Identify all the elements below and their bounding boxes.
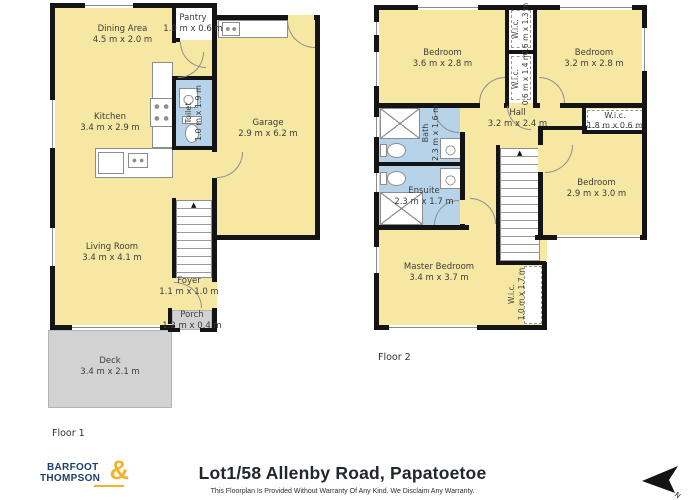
- room-dims: 2.9 m x 3.0 m: [545, 189, 648, 200]
- window: [374, 247, 379, 273]
- room-name: W.i.c.: [507, 284, 517, 304]
- window: [374, 52, 379, 86]
- room-label-foyer: Foyer 1.1 m x 1.0 m: [158, 276, 220, 297]
- logo-underline: [94, 485, 124, 487]
- stairs-floor2: [500, 148, 540, 262]
- room-name: Master Bedroom: [380, 262, 498, 273]
- window: [374, 22, 379, 35]
- wall: [538, 126, 543, 238]
- north-arrow-svg: N: [638, 463, 686, 499]
- north-arrow-icon: N: [638, 463, 686, 499]
- window: [50, 228, 55, 266]
- room-label-master: Master Bedroom 3.4 m x 3.7 m: [380, 262, 498, 283]
- room-name: Kitchen: [60, 112, 160, 123]
- room-label-pantry: Pantry 1.0 m x 0.6 m: [158, 13, 228, 34]
- room-label-ensuite: Ensuite 2.3 m x 1.7 m: [382, 186, 466, 207]
- room-label-garage: Garage 2.9 m x 6.2 m: [218, 118, 318, 139]
- room-label-living: Living Room 3.4 m x 4.1 m: [62, 242, 162, 263]
- room-dims: 1.1 m x 1.0 m: [158, 287, 220, 298]
- room-label-wic-master: W.i.c. 1.0 m x 1.7 m: [489, 266, 545, 322]
- wall: [172, 146, 217, 150]
- room-name: W.i.c.: [511, 69, 521, 89]
- window: [85, 3, 133, 8]
- floor2-label: Floor 2: [378, 352, 411, 363]
- barfoot-thompson-logo: BARFOOT THOMPSON &: [40, 463, 124, 495]
- room-label-toilet: Toilet 1.0 m x 1.9 m: [166, 85, 222, 141]
- disclaimer-text: This Floorplan Is Provided Without Warra…: [150, 488, 535, 495]
- room-label-bath: Bath 2.3 m x 1.6 m: [403, 105, 459, 161]
- room-dims: 3.2 m x 2.8 m: [540, 59, 648, 70]
- door-opening: [538, 145, 543, 172]
- window: [72, 325, 160, 330]
- room-label-bedroom-ne: Bedroom 3.2 m x 2.8 m: [540, 48, 648, 69]
- room-name: W.i.c.: [583, 111, 647, 121]
- room-name: Porch: [160, 310, 224, 321]
- wall: [496, 261, 546, 265]
- wall: [50, 3, 55, 330]
- room-dims: 3.6 m x 2.8 m: [390, 59, 495, 70]
- room-dims: 1.0 m x 1.9 m: [194, 85, 204, 141]
- room-name: W.i.c.: [511, 19, 521, 39]
- room-label-kitchen: Kitchen 3.4 m x 2.9 m: [60, 112, 160, 133]
- floorplan-page: ▲: [0, 0, 700, 500]
- room-label-hall: Hall 3.2 m x 2.4 m: [460, 108, 575, 129]
- window: [560, 5, 632, 10]
- room-name: Pantry: [158, 13, 228, 24]
- room-dims: 3.4 m x 2.1 m: [60, 367, 160, 378]
- window: [374, 117, 379, 137]
- wall: [496, 145, 500, 265]
- room-label-porch: Porch 1.2 m x 0.4 m: [160, 310, 224, 331]
- room-name: Garage: [218, 118, 318, 129]
- room-dims: 1.8 m x 0.6 m: [583, 121, 647, 131]
- room-name: Living Room: [62, 242, 162, 253]
- room-name: Bedroom: [390, 48, 495, 59]
- room-name: Bedroom: [540, 48, 648, 59]
- wall: [374, 162, 464, 166]
- room-name: Ensuite: [382, 186, 466, 197]
- room-dims: 2.3 m x 1.6 m: [431, 105, 441, 161]
- logo-ampersand: &: [110, 457, 130, 484]
- floor1-label: Floor 1: [52, 428, 85, 439]
- wall: [172, 198, 176, 278]
- room-dims: 1.2 m x 0.4 m: [160, 321, 224, 332]
- room-label-bedroom-e: Bedroom 2.9 m x 3.0 m: [545, 178, 648, 199]
- window: [389, 325, 477, 330]
- room-dims: 2.3 m x 1.7 m: [382, 197, 466, 208]
- kitchen-sink-faucets: [128, 153, 148, 168]
- wall: [50, 3, 217, 8]
- bath-toilet-tank: [380, 144, 387, 157]
- room-dims: 4.5 m x 2.0 m: [60, 35, 185, 46]
- ensuite-toilet-bowl: [387, 171, 406, 186]
- room-label-deck: Deck 3.4 m x 2.1 m: [60, 356, 160, 377]
- room-name: Toilet: [184, 103, 194, 124]
- kitchen-sink: [98, 152, 124, 174]
- room-dims: 3.4 m x 3.7 m: [380, 273, 498, 284]
- stairs-floor1: [176, 200, 212, 278]
- page-title: Lot1/58 Allenby Road, Papatoetoe: [150, 463, 535, 484]
- room-dims: 0.6 m x 1.4 m: [521, 53, 531, 105]
- room-name: Bath: [421, 124, 431, 143]
- stairs-up-arrow: ▲: [191, 202, 196, 209]
- room-dims: 2.9 m x 6.2 m: [218, 129, 318, 140]
- ensuite-toilet-tank: [380, 172, 387, 185]
- room-dims: 3.2 m x 2.4 m: [460, 119, 575, 130]
- wall: [374, 225, 469, 230]
- room-dims: 0.6 m x 1.3 m: [521, 3, 531, 55]
- stairs-up-arrow: ▲: [517, 150, 522, 157]
- window: [418, 5, 478, 10]
- room-name: Bedroom: [545, 178, 648, 189]
- room-name: Foyer: [158, 276, 220, 287]
- room-label-wic-east: W.i.c. 1.8 m x 0.6 m: [583, 111, 647, 131]
- room-dims: 3.4 m x 4.1 m: [62, 253, 162, 264]
- window: [374, 173, 379, 192]
- room-dims: 1.0 m x 0.6 m: [158, 24, 228, 35]
- window: [557, 235, 640, 240]
- room-label-bedroom-nw: Bedroom 3.6 m x 2.8 m: [390, 48, 495, 69]
- room-dims: 1.0 m x 1.7 m: [517, 268, 527, 320]
- wall: [213, 235, 320, 240]
- window: [50, 100, 55, 148]
- room-name: Deck: [60, 356, 160, 367]
- room-dims: 3.4 m x 2.9 m: [60, 123, 160, 134]
- room-name: Hall: [460, 108, 575, 119]
